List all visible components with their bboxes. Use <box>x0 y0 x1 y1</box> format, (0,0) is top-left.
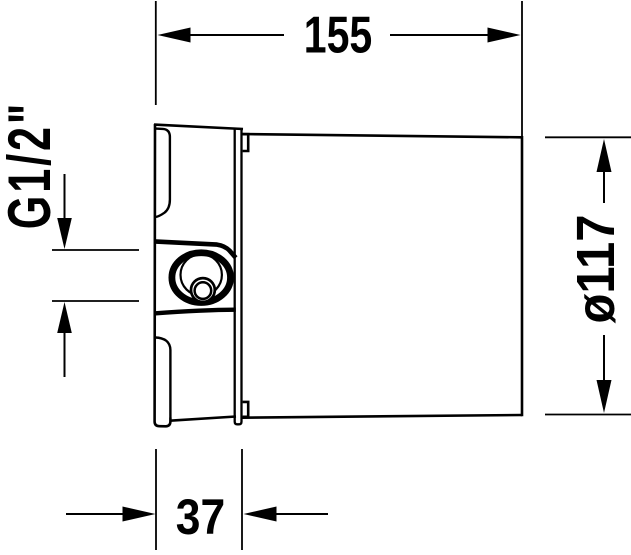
svg-text:155: 155 <box>304 6 373 64</box>
svg-text:G1/2": G1/2" <box>0 101 64 230</box>
svg-text:ø117: ø117 <box>565 214 626 323</box>
svg-text:37: 37 <box>176 489 225 545</box>
